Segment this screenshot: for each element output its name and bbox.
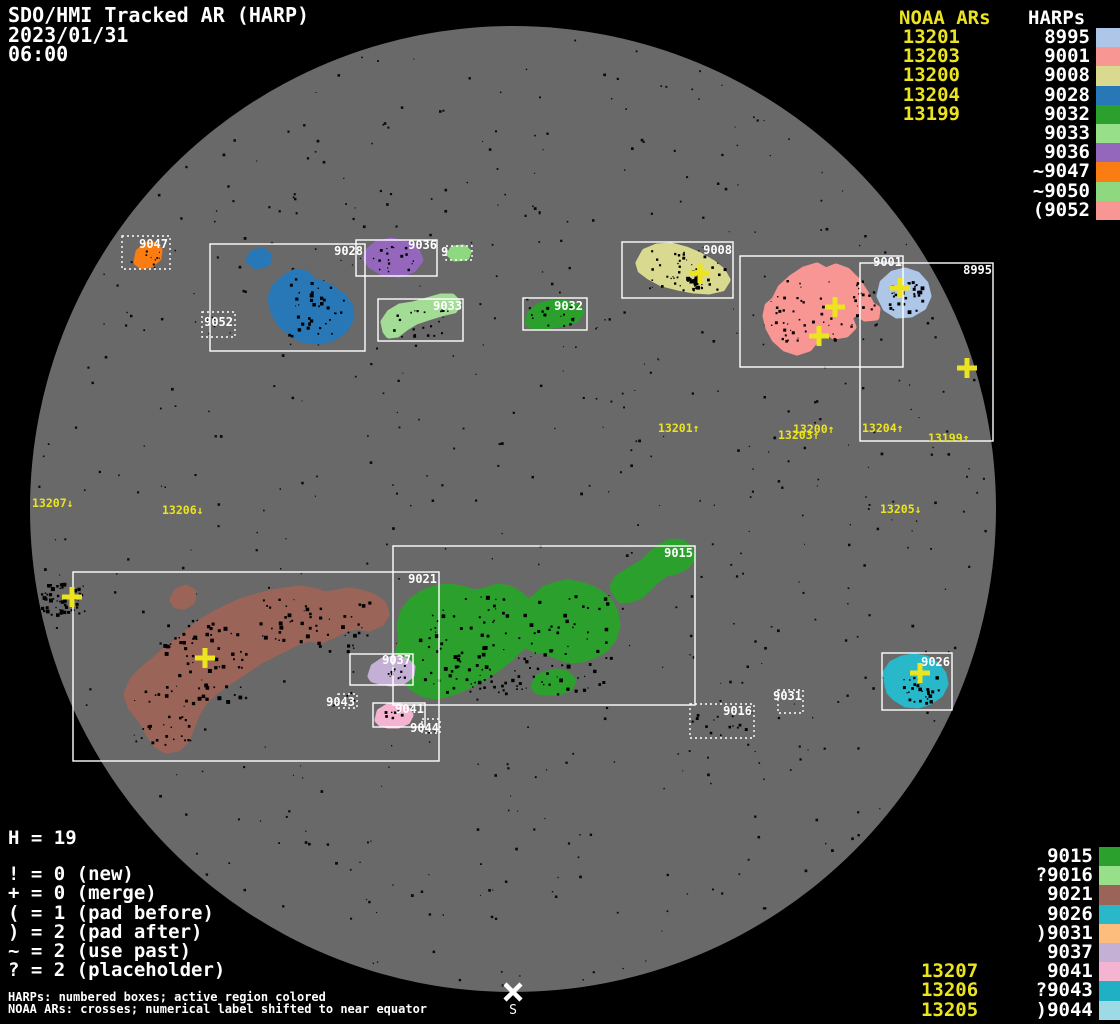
legend-color-swatch (1099, 866, 1120, 885)
south-pole-marker: S (505, 984, 521, 1018)
legend-harp-number: (9052 (960, 201, 1090, 220)
legend-bottom-right: 9015?901690219026)9031903713207904113206… (875, 847, 1120, 1020)
legend-noaa-number (875, 143, 960, 162)
code-legend: ! = 0 (new) + = 0 (merge) ( = 1 (pad bef… (8, 865, 225, 981)
harp-box-label: 9001 (873, 255, 902, 269)
legend-row: ~9047 (875, 162, 1120, 181)
legend-noaa-number (875, 201, 960, 220)
legend-harp-number: 9028 (960, 86, 1090, 105)
harp-box-label: 9036 (408, 238, 437, 252)
ar-blob-9050 (450, 248, 468, 258)
legend-noaa-number (875, 924, 978, 943)
legend-color-swatch (1099, 905, 1120, 924)
legend-noaa-number (875, 866, 978, 885)
harp-box-label: 9032 (554, 299, 583, 313)
legend-harp-number: ?9043 (978, 981, 1093, 1000)
legend-color-swatch (1099, 924, 1120, 943)
legend-color-swatch (1096, 143, 1120, 162)
harp-box-label: 9021 (408, 572, 437, 586)
legend-harp-number: )9044 (978, 1001, 1093, 1020)
legend-row: (9052 (875, 201, 1120, 220)
legend-row: 13205)9044 (875, 1001, 1120, 1020)
legend-color-swatch (1096, 47, 1120, 66)
legend-color-swatch (1099, 885, 1120, 904)
legend-harp-number: ~9047 (960, 162, 1090, 181)
legend-color-swatch (1096, 66, 1120, 85)
harp-count: H = 19 (8, 829, 77, 848)
harp-box-label: 9008 (703, 243, 732, 257)
legend-color-swatch (1099, 1001, 1120, 1020)
harp-box-label: 9043 (326, 695, 355, 709)
legend-harp-number: 9008 (960, 66, 1090, 85)
harp-box-label: 9041 (395, 702, 424, 716)
legend-harp-number: 9021 (978, 885, 1093, 904)
legend-noaa-number (875, 847, 978, 866)
legend-harp-number: ~9050 (960, 182, 1090, 201)
harp-box-label: 9047 (139, 237, 168, 251)
noaa-disk-label: 13205↓ (880, 502, 922, 516)
legend-color-swatch (1096, 182, 1120, 201)
harp-box-label: 8995 (963, 263, 992, 277)
legend-color-swatch (1099, 847, 1120, 866)
plot-time: 06:00 (8, 42, 68, 66)
harp-box-label: 9015 (664, 546, 693, 560)
legend-color-swatch (1096, 86, 1120, 105)
harp-box-label: 9028 (334, 244, 363, 258)
south-pole-label: S (509, 1003, 517, 1018)
legend-color-swatch (1096, 105, 1120, 124)
legend-noaa-number (875, 182, 960, 201)
legend-row: 9026 (875, 905, 1120, 924)
noaa-disk-label: 13199↑ (928, 431, 970, 445)
legend-row: 13206?9043 (875, 981, 1120, 1000)
noaa-disk-label: 13203↑ (778, 428, 820, 442)
legend-color-swatch (1096, 28, 1120, 47)
legend-color-swatch (1096, 162, 1120, 181)
harp-box-label: 9052 (204, 315, 233, 329)
legend-color-swatch (1096, 124, 1120, 143)
noaa-disk-label: 13204↑ (862, 421, 904, 435)
harp-box-label: 9016 (723, 704, 752, 718)
legend-row: ~9050 (875, 182, 1120, 201)
legend-color-swatch (1099, 943, 1120, 962)
legend-noaa-number: 13205 (875, 1001, 978, 1020)
legend-noaa-number: 13200 (875, 66, 960, 85)
ar-blob-9021 (173, 588, 193, 606)
harp-box-label: 9026 (921, 655, 950, 669)
harp-map-stage: 9050904790529028903690339032900890018995… (0, 0, 1120, 1024)
legend-row: 132009008 (875, 66, 1120, 85)
harp-box-label: 9033 (433, 299, 462, 313)
legend-color-swatch (1096, 201, 1120, 220)
harp-box-label: 9044 (410, 721, 439, 735)
caption-noaa: NOAA ARs: crosses; numerical label shift… (8, 1003, 427, 1015)
legend-noaa-number (875, 885, 978, 904)
plot-title-block: SDO/HMI Tracked AR (HARP)2023/01/3106:00 (8, 6, 309, 65)
legend-noaa-number: 13199 (875, 105, 960, 124)
legend-color-swatch (1099, 962, 1120, 981)
legend-row: 9021 (875, 885, 1120, 904)
legend-color-swatch (1099, 981, 1120, 1000)
noaa-disk-label: 13206↓ (162, 503, 204, 517)
harp-box-label: 9031 (773, 689, 802, 703)
legend-noaa-number (875, 124, 960, 143)
legend-noaa-number: 13204 (875, 86, 960, 105)
legend-noaa-number (875, 905, 978, 924)
harp-box-label: 9037 (382, 653, 411, 667)
ar-blob-9028 (249, 251, 269, 266)
legend-row: 132049028 (875, 86, 1120, 105)
legend-noaa-number (875, 162, 960, 181)
legend-noaa-number: 13206 (875, 981, 978, 1000)
noaa-disk-label: 13207↓ (32, 496, 74, 510)
noaa-disk-label: 13201↑ (658, 421, 700, 435)
legend-top-right: 1320189951320390011320090081320490281319… (875, 28, 1120, 220)
legend-harp-number: 9026 (978, 905, 1093, 924)
